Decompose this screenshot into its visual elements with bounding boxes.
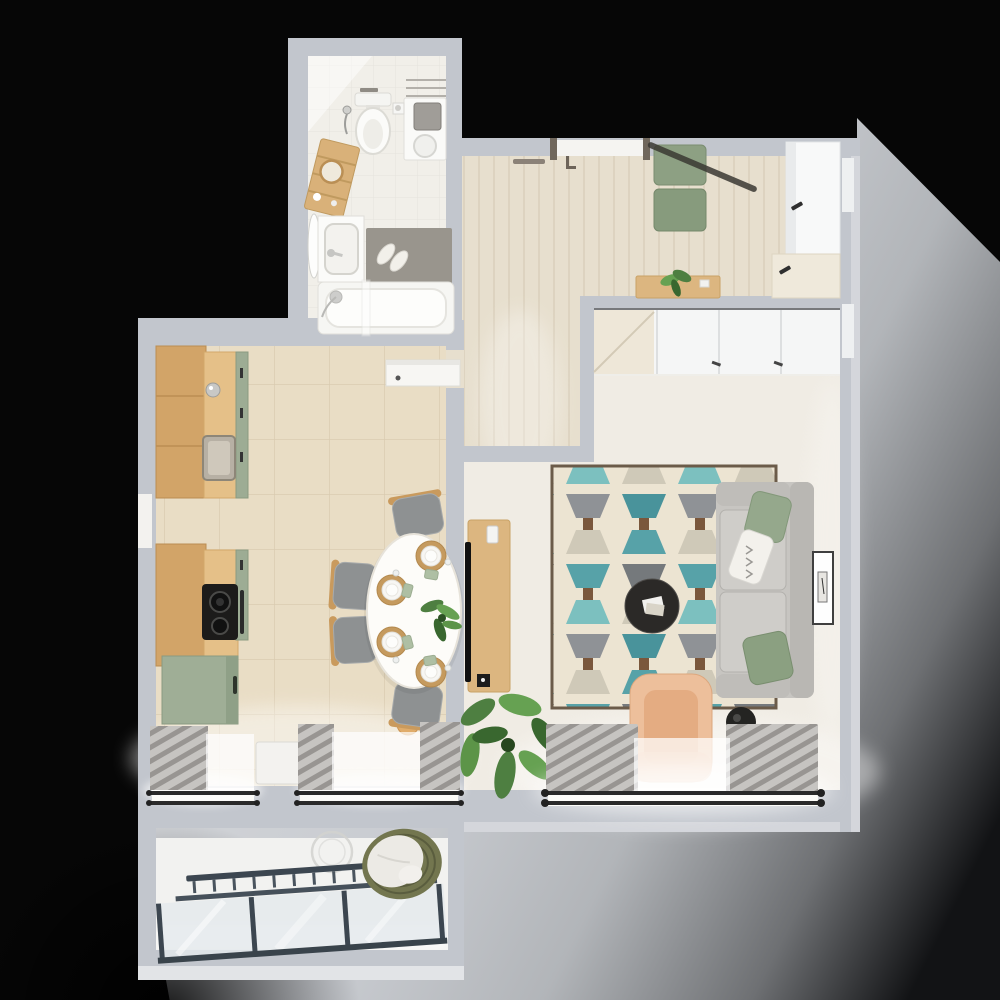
cabinet-handle xyxy=(233,676,237,694)
wall-corridor-bottom xyxy=(458,446,594,462)
wall-bath-left xyxy=(288,38,308,338)
curtain-drape xyxy=(420,722,460,790)
green-pillow xyxy=(741,630,794,686)
open-door xyxy=(386,360,460,386)
sheer-curtain xyxy=(634,738,730,792)
kitchen-window-right xyxy=(294,722,465,806)
kitchen-window-left xyxy=(143,726,263,806)
toilet xyxy=(355,88,391,154)
storage-basket xyxy=(414,103,441,130)
toilet-paper-holder xyxy=(393,103,404,114)
wall-corridor-right xyxy=(580,310,594,458)
curtain-rod xyxy=(148,801,258,805)
flush-plate xyxy=(360,88,378,92)
picture-frame xyxy=(813,552,833,624)
washing-machine xyxy=(404,98,446,160)
glass-screen xyxy=(362,280,370,336)
curtain-drape xyxy=(546,724,638,792)
curtain-rod xyxy=(544,791,822,795)
oven-handle xyxy=(240,590,244,634)
faucet xyxy=(206,383,220,397)
curtain-drape xyxy=(150,726,208,790)
tv-console xyxy=(465,520,510,692)
floorplan-canvas xyxy=(0,0,1000,1000)
kitchen-counter-cooktop xyxy=(156,544,248,666)
door-handle xyxy=(396,376,401,381)
gray-sofa xyxy=(716,482,814,698)
wall-bath-top xyxy=(288,38,462,56)
bathtub xyxy=(318,280,454,336)
window-recess-left xyxy=(138,494,152,548)
window-recess-right-b xyxy=(842,304,854,358)
vanity-sink xyxy=(318,216,364,282)
green-base-cabinet xyxy=(162,656,238,724)
curtain-rod xyxy=(148,791,258,795)
curtain-rod xyxy=(296,791,462,795)
curtain-rod xyxy=(296,801,462,805)
sheer-curtain xyxy=(206,734,254,790)
curtain-rod xyxy=(544,801,822,805)
curtain-drape xyxy=(298,724,334,790)
sliding-door-closet xyxy=(594,308,840,374)
tv xyxy=(465,542,471,682)
curtain-drape xyxy=(726,724,818,792)
kitchen-counter-sink xyxy=(156,346,248,498)
sheer-curtain xyxy=(332,732,424,790)
window-recess-right-a xyxy=(842,158,854,212)
low-cream-cabinet xyxy=(772,254,840,298)
coat-rack xyxy=(513,159,545,164)
floorplan-render xyxy=(0,0,1000,1000)
round-coffee-table xyxy=(625,579,679,633)
tall-white-cabinet xyxy=(786,142,840,254)
